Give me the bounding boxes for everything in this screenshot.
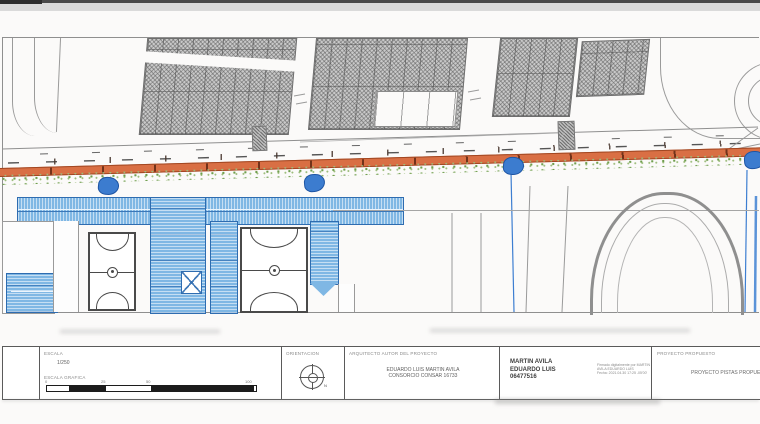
architect-label: ARQUITECTO AUTOR DEL PROYECTO xyxy=(349,351,437,356)
scale-tick: 50 xyxy=(146,379,150,384)
title-block-divider xyxy=(39,347,40,399)
crosswalk-dashes xyxy=(294,90,481,104)
signature-name-line: MARTIN AVILA xyxy=(510,359,556,367)
project-label: PROYECTO PROPUESTO xyxy=(657,351,715,356)
title-block: ESCALA 1/250 ESCALA GRAFICA 0 25 50 100 … xyxy=(2,346,760,400)
plan-sheet: ESCALA 1/250 ESCALA GRAFICA 0 25 50 100 … xyxy=(0,0,760,424)
scan-smudge xyxy=(60,330,220,333)
blue-roof-wing-right xyxy=(310,221,339,285)
court-center-dot xyxy=(111,270,114,273)
title-block-divider xyxy=(651,347,652,399)
blue-boundary-line xyxy=(755,196,756,312)
campus-walkway xyxy=(338,284,355,312)
north-compass-icon xyxy=(300,365,324,389)
scale-segment xyxy=(69,386,106,391)
road-crossing-hatch-1 xyxy=(252,126,268,152)
title-block-divider xyxy=(344,347,345,399)
signature-name-line: EDUARDO LUIS xyxy=(510,367,556,375)
scale-segment xyxy=(106,386,151,391)
court-key-bottom xyxy=(250,292,298,312)
scale-segment xyxy=(47,386,69,391)
orientation-label: ORIENTACION xyxy=(286,351,319,356)
signature-name-line: 06477516 xyxy=(510,374,556,382)
title-block-divider xyxy=(499,347,500,399)
graphic-scale-bar xyxy=(46,385,257,392)
court-key-bottom xyxy=(96,292,130,310)
tree-leader-line-2 xyxy=(745,170,747,312)
campus-corridor xyxy=(53,221,79,312)
blue-roof-wing-left xyxy=(210,221,238,314)
tree-marker-icon xyxy=(743,150,760,169)
compass-hub xyxy=(308,373,318,383)
roof-ridge-line xyxy=(11,291,53,292)
graphic-scale-label: ESCALA GRAFICA xyxy=(44,375,86,380)
stamp-line: Fecha: 2021.04.30 17:25 -05'00' xyxy=(597,371,649,375)
title-block-divider xyxy=(281,347,282,399)
title-block-shadow-faint xyxy=(2,399,759,402)
pole-line-1 xyxy=(526,186,530,312)
scale-segment xyxy=(151,386,254,391)
scan-smudge xyxy=(430,329,690,332)
court-key-top xyxy=(250,228,298,248)
tree-leader-line-1 xyxy=(511,172,514,312)
project-value: PROYECTO PISTAS PROPUESTAS xyxy=(691,370,760,376)
road-lane-edge xyxy=(300,133,560,142)
scale-tick: 100 xyxy=(245,379,252,384)
court-key-top xyxy=(96,233,130,251)
roof-ridge-shadow xyxy=(18,211,403,212)
signature-stamp-text: Firmado digitalmente por MARTIN AVILA ED… xyxy=(597,363,649,376)
scale-tick: 0 xyxy=(45,379,47,384)
court-center-dot xyxy=(273,269,276,272)
blue-roof-small-building xyxy=(6,273,58,313)
architect-line-2: CONSORCIO CONSAR 16733 xyxy=(348,373,498,379)
pole-line-2 xyxy=(562,186,568,312)
scale-label: ESCALA xyxy=(44,351,63,356)
scale-tick: 25 xyxy=(101,379,105,384)
sports-court-2 xyxy=(240,227,308,313)
field-path-lines xyxy=(452,213,481,312)
blue-roof-central-block xyxy=(150,197,206,314)
north-letter: N xyxy=(324,383,327,388)
stairwell-box xyxy=(181,271,202,294)
signature-name-block: MARTIN AVILA EDUARDO LUIS 06477516 xyxy=(510,359,556,382)
architect-text: EDUARDO LUIS MARTIN AVILA CONSORCIO CONS… xyxy=(348,367,498,379)
scale-value: 1/250 xyxy=(57,360,70,366)
sports-court-1 xyxy=(88,232,136,311)
